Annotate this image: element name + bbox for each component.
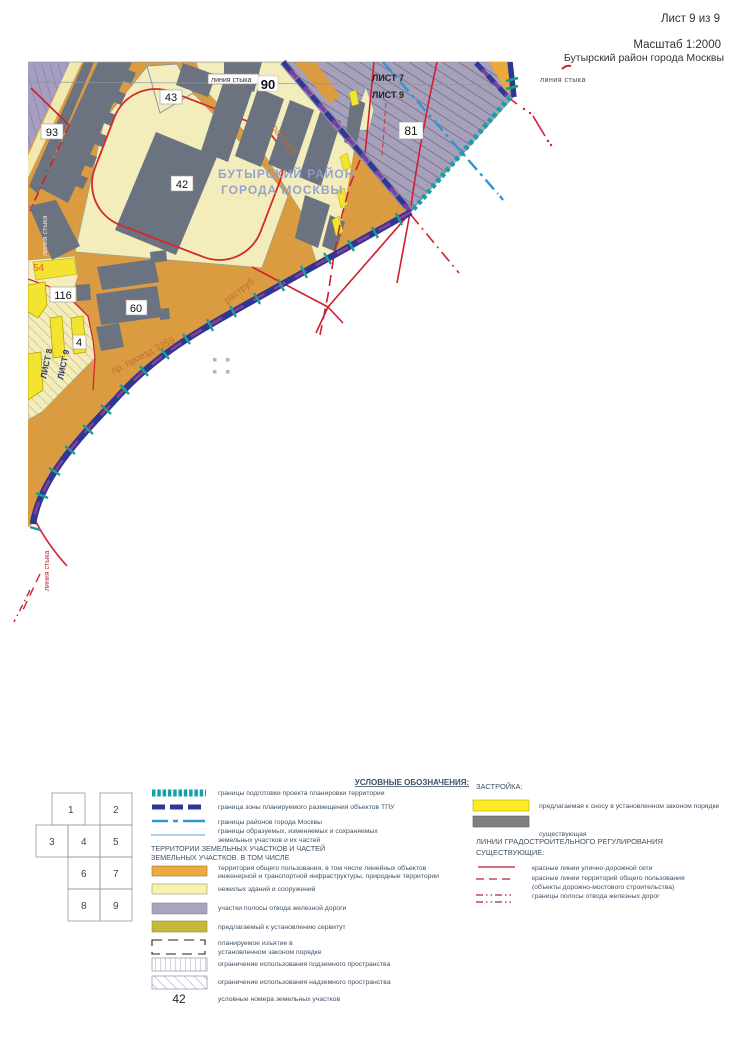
svg-text:границы образуемых, изменяемых: границы образуемых, изменяемых и сохраня… xyxy=(218,827,378,835)
svg-text:УСЛОВНЫЕ ОБОЗНАЧЕНИЯ:: УСЛОВНЫЕ ОБОЗНАЧЕНИЯ: xyxy=(355,778,469,787)
svg-text:ЛИСТ 7: ЛИСТ 7 xyxy=(372,73,404,83)
svg-text:условные номера земельных учас: условные номера земельных участков xyxy=(218,996,340,1003)
svg-text:1: 1 xyxy=(68,805,74,816)
svg-text:54: 54 xyxy=(33,263,45,274)
svg-text:территория общего пользования,: территория общего пользования, в том чис… xyxy=(218,864,427,872)
svg-text:установленном законом порядке: установленном законом порядке xyxy=(218,949,322,956)
svg-text:земельных участков и их частей: земельных участков и их частей xyxy=(218,836,320,844)
svg-text:СУЩЕСТВУЮЩИЕ:: СУЩЕСТВУЮЩИЕ: xyxy=(476,848,544,857)
svg-text:60: 60 xyxy=(130,303,142,315)
svg-text:6: 6 xyxy=(81,869,87,880)
svg-text:ограничение использования надз: ограничение использования надземного про… xyxy=(218,979,391,986)
svg-text:3: 3 xyxy=(49,837,55,848)
svg-text:границы полосы отвода железных: границы полосы отвода железных дорог xyxy=(532,893,660,900)
svg-text:2: 2 xyxy=(113,805,119,816)
svg-text:ЗЕМЕЛЬНЫХ УЧАСТКОВ. В ТОМ ЧИСЛ: ЗЕМЕЛЬНЫХ УЧАСТКОВ. В ТОМ ЧИСЛЕ xyxy=(151,853,290,862)
svg-text:81: 81 xyxy=(404,124,418,138)
svg-text:граница зоны планируемого разм: граница зоны планируемого размещения объ… xyxy=(218,803,395,811)
svg-text:Бутырский район города Москвы: Бутырский район города Москвы xyxy=(564,52,724,64)
svg-text:90: 90 xyxy=(261,77,275,92)
svg-text:линия стыка: линия стыка xyxy=(42,216,49,256)
svg-text:43: 43 xyxy=(165,92,177,104)
svg-text:предлагаемый к установлению се: предлагаемый к установлению сервитут xyxy=(218,923,346,931)
svg-text:красные линии улично-дорожной: красные линии улично-дорожной сети xyxy=(532,864,653,872)
svg-text:Масштаб 1:2000: Масштаб 1:2000 xyxy=(633,39,721,51)
svg-text:ограничение использования подз: ограничение использования подземного про… xyxy=(218,961,391,968)
svg-text:нежилых зданий и сооружений: нежилых зданий и сооружений xyxy=(218,885,316,893)
svg-text:ЛИНИИ ГРАДОСТРОИТЕЛЬНОГО РЕГУЛ: ЛИНИИ ГРАДОСТРОИТЕЛЬНОГО РЕГУЛИРОВАНИЯ xyxy=(476,837,663,846)
svg-text:8: 8 xyxy=(81,901,87,912)
svg-text:предлагаемая к сносу в установ: предлагаемая к сносу в установленном зак… xyxy=(539,803,719,810)
svg-text:42: 42 xyxy=(176,179,188,191)
svg-text:красные линии территорий общег: красные линии территорий общего пользова… xyxy=(532,874,685,882)
svg-text:(объекты дорожно-мостового стр: (объекты дорожно-мостового строительства… xyxy=(532,883,674,891)
svg-text:9: 9 xyxy=(113,901,119,912)
svg-text:ТЕРРИТОРИИ ЗЕМЕЛЬНЫХ УЧАСТКОВ: ТЕРРИТОРИИ ЗЕМЕЛЬНЫХ УЧАСТКОВ И ЧАСТЕЙ xyxy=(151,844,325,853)
svg-text:границы районов города Москвы: границы районов города Москвы xyxy=(218,818,322,826)
svg-text:БУТЫРСКИЙ РАЙОН: БУТЫРСКИЙ РАЙОН xyxy=(218,166,354,181)
svg-text:4: 4 xyxy=(81,837,87,848)
svg-text:93: 93 xyxy=(46,127,58,139)
svg-text:участки полосы отвода железной: участки полосы отвода железной дороги xyxy=(218,904,347,912)
svg-text:42: 42 xyxy=(172,992,186,1006)
svg-text:границы подготовки проекта пла: границы подготовки проекта планировки те… xyxy=(218,790,385,797)
svg-text:116: 116 xyxy=(54,290,72,302)
svg-text:планируемое изъятие в: планируемое изъятие в xyxy=(218,940,293,947)
svg-text:ЗАСТРОЙКА:: ЗАСТРОЙКА: xyxy=(476,782,523,791)
svg-text:ЛИСТ 9: ЛИСТ 9 xyxy=(372,90,404,100)
svg-text:линия стыка: линия стыка xyxy=(44,551,51,591)
svg-text:ГОРОДА МОСКВЫ: ГОРОДА МОСКВЫ xyxy=(221,183,343,197)
svg-text:линия стыка: линия стыка xyxy=(211,77,251,84)
svg-text:инженерной и транспортной инфр: инженерной и транспортной инфраструктуры… xyxy=(218,872,439,880)
svg-text:7: 7 xyxy=(113,869,119,880)
svg-text:5: 5 xyxy=(113,837,119,848)
svg-text:Лист 9 из 9: Лист 9 из 9 xyxy=(661,13,720,25)
svg-text:4: 4 xyxy=(76,337,82,349)
svg-text:линия стыка: линия стыка xyxy=(540,77,586,84)
